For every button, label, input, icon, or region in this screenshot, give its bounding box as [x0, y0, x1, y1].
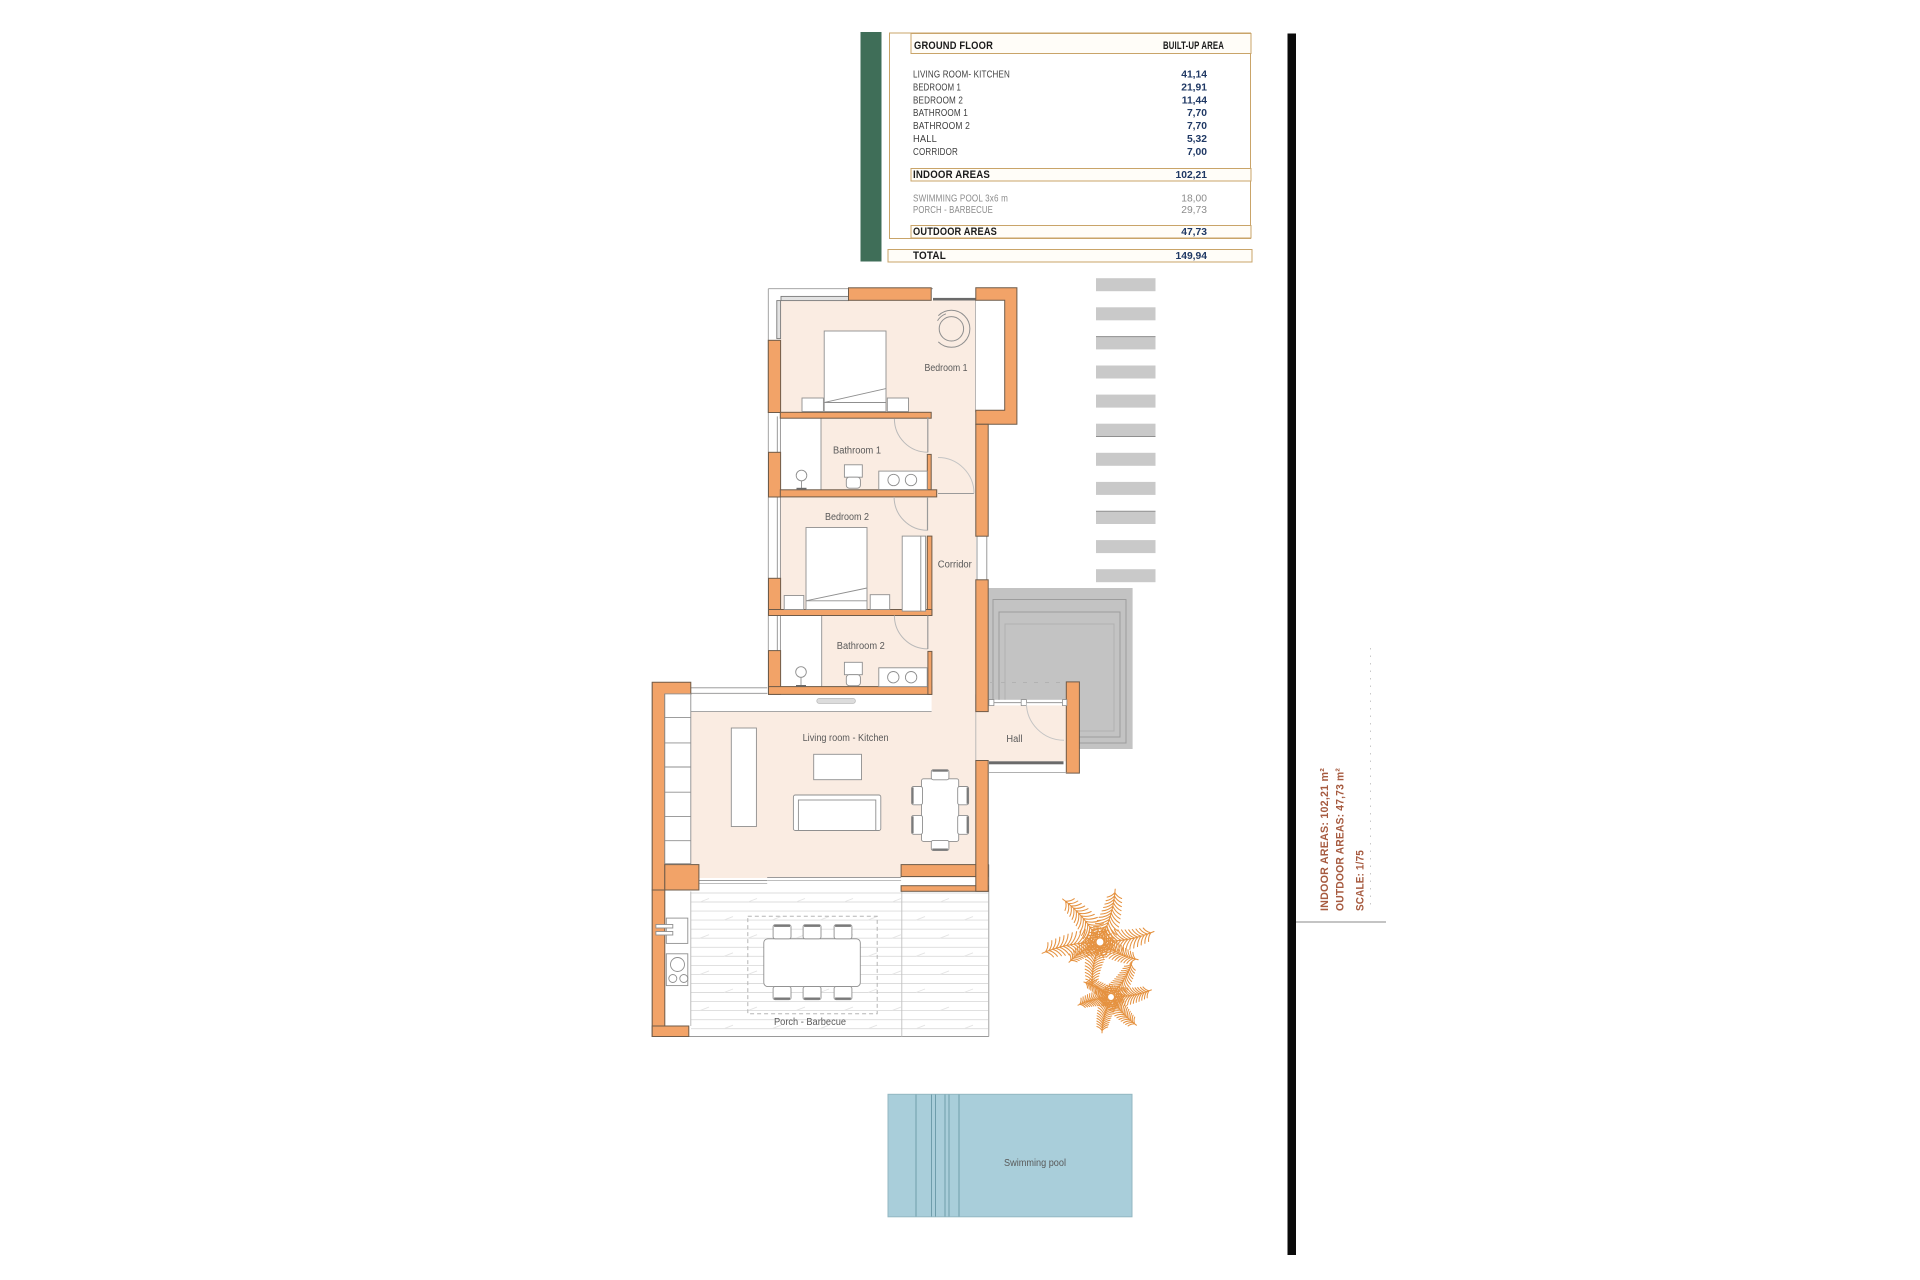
svg-text:Swimming pool: Swimming pool: [1004, 1158, 1066, 1169]
svg-text:149,94: 149,94: [1176, 251, 1208, 262]
svg-text:OUTDOOR AREAS: 47,73 m²: OUTDOOR AREAS: 47,73 m²: [1335, 768, 1347, 911]
svg-text:BATHROOM 2: BATHROOM 2: [913, 121, 970, 132]
svg-text:HALL: HALL: [913, 134, 937, 145]
svg-text:29,73: 29,73: [1181, 205, 1207, 216]
svg-text:Bathroom 1: Bathroom 1: [833, 446, 881, 457]
svg-text:BATHROOM 1: BATHROOM 1: [913, 108, 968, 119]
svg-text:Porch - Barbecue: Porch - Barbecue: [774, 1017, 846, 1028]
svg-text:Bathroom 2: Bathroom 2: [837, 641, 885, 652]
svg-text:18,00: 18,00: [1181, 194, 1207, 205]
svg-text:SCALE: 1/75: SCALE: 1/75: [1355, 850, 1367, 911]
svg-text:21,91: 21,91: [1181, 83, 1207, 94]
svg-text:SWIMMING POOL 3x6 m: SWIMMING POOL 3x6 m: [913, 194, 1008, 205]
svg-text:BEDROOM 2: BEDROOM 2: [913, 96, 963, 107]
svg-text:Bedroom 2: Bedroom 2: [825, 512, 869, 523]
svg-text:Corridor: Corridor: [938, 560, 973, 571]
svg-text:Living room - Kitchen: Living room - Kitchen: [803, 733, 889, 744]
svg-text:PORCH - BARBECUE: PORCH - BARBECUE: [913, 205, 993, 216]
svg-text:7,70: 7,70: [1187, 108, 1207, 119]
svg-text:47,73: 47,73: [1181, 227, 1207, 238]
svg-text:CORRIDOR: CORRIDOR: [913, 147, 958, 158]
svg-text:OUTDOOR AREAS: OUTDOOR AREAS: [913, 226, 997, 238]
svg-text:Bedroom 1: Bedroom 1: [925, 363, 968, 374]
svg-text:102,21: 102,21: [1176, 170, 1208, 181]
svg-text:BEDROOM 1: BEDROOM 1: [913, 83, 961, 94]
svg-text:7,00: 7,00: [1187, 147, 1207, 158]
svg-text:11,44: 11,44: [1182, 96, 1207, 107]
svg-text:7,70: 7,70: [1187, 121, 1207, 132]
svg-text:GROUND FLOOR: GROUND FLOOR: [914, 40, 993, 52]
svg-text:Hall: Hall: [1006, 734, 1022, 745]
svg-text:INDOOR AREAS: 102,21 m²: INDOOR AREAS: 102,21 m²: [1319, 768, 1331, 911]
svg-text:BUILT-UP AREA: BUILT-UP AREA: [1163, 40, 1224, 52]
svg-text:INDOOR AREAS: INDOOR AREAS: [913, 169, 990, 181]
svg-text:5,32: 5,32: [1187, 134, 1207, 145]
svg-text:41,14: 41,14: [1181, 70, 1207, 81]
svg-text:LIVING ROOM- KITCHEN: LIVING ROOM- KITCHEN: [913, 70, 1010, 81]
svg-text:TOTAL: TOTAL: [913, 250, 946, 262]
